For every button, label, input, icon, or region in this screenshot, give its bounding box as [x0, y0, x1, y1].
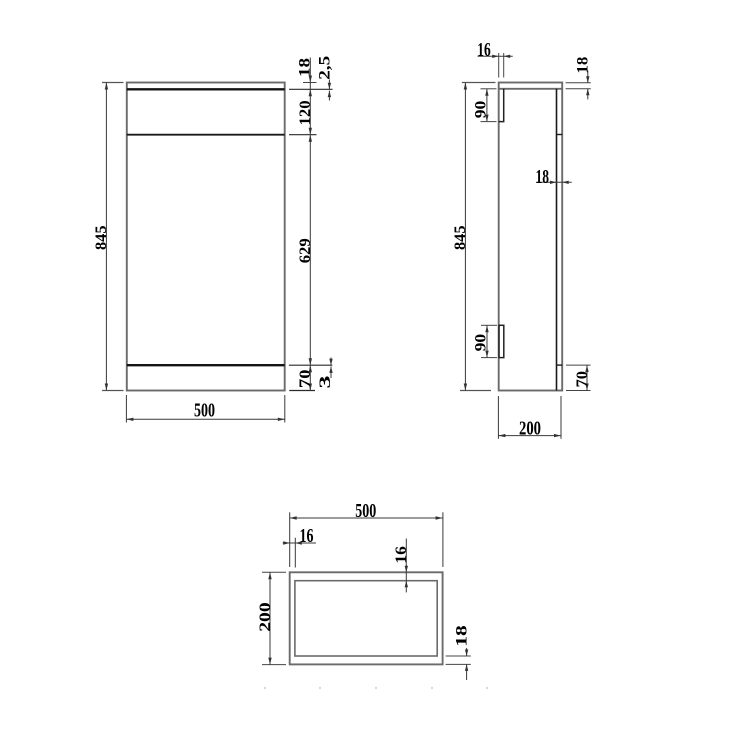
svg-text:16: 16	[393, 546, 410, 564]
svg-text:90: 90	[472, 101, 489, 119]
svg-text:90: 90	[473, 334, 490, 352]
svg-text:16: 16	[477, 40, 491, 61]
svg-text:500: 500	[355, 501, 376, 522]
svg-text:18: 18	[454, 625, 471, 647]
svg-text:200: 200	[519, 419, 541, 440]
svg-text:500: 500	[194, 400, 215, 421]
svg-text:845: 845	[452, 226, 469, 251]
svg-text:18: 18	[575, 57, 592, 74]
svg-text:18: 18	[297, 58, 314, 77]
svg-text:70: 70	[574, 371, 591, 388]
svg-text:200: 200	[257, 602, 274, 632]
svg-text:70: 70	[297, 370, 314, 389]
svg-text:18: 18	[536, 167, 550, 188]
svg-text:16: 16	[300, 526, 314, 547]
svg-text:3: 3	[317, 376, 334, 389]
svg-text:845: 845	[93, 226, 110, 251]
svg-text:2,5: 2,5	[316, 56, 333, 80]
svg-text:629: 629	[297, 238, 314, 263]
svg-text:120: 120	[297, 100, 314, 125]
